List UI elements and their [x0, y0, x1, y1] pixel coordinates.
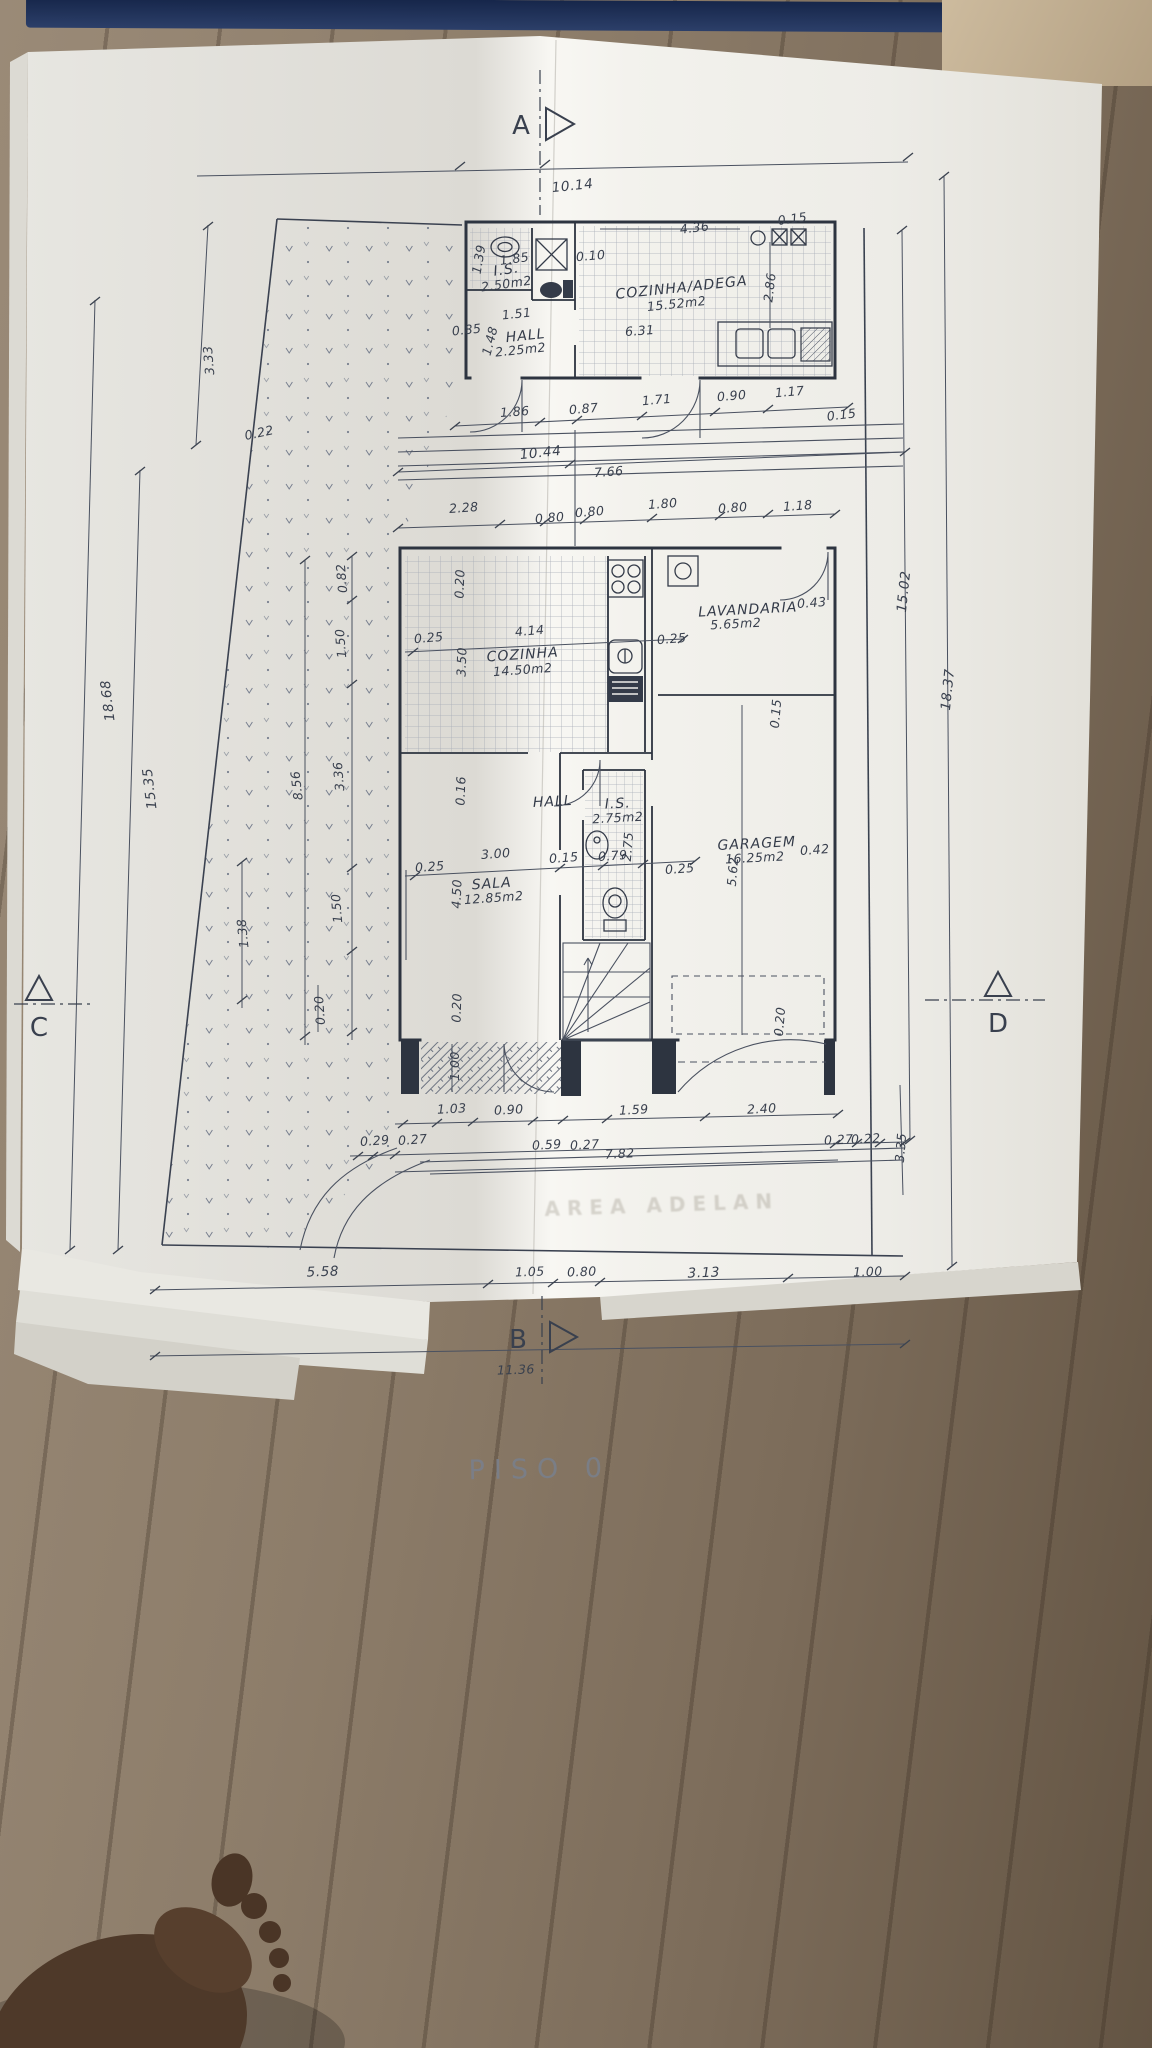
dim-label: 1.00 [447, 1051, 462, 1080]
dim-label: 0.20 [451, 569, 467, 599]
section-marker-a: A [512, 111, 530, 141]
dim-label: 1.38 [234, 918, 252, 949]
dim-label: 1.86 [499, 403, 529, 420]
dim-label: 7.82 [605, 1145, 635, 1162]
dim-label: 0.25 [414, 858, 444, 875]
dim-label: 0.27 [570, 1136, 600, 1153]
dim-label: 0.80 [717, 499, 747, 516]
dim-label: 0.87 [568, 400, 599, 418]
dim-label: 1.50 [328, 893, 346, 924]
section-marker-b: B [509, 1325, 527, 1355]
dim-label: 0.20 [311, 995, 328, 1025]
dim-label: 3.50 [453, 647, 469, 677]
dim-label: 11.36 [497, 1361, 535, 1377]
dim-label: 3.00 [480, 845, 510, 862]
dim-label: 0.27 [397, 1131, 427, 1148]
dim-label: 3.35 [892, 1132, 910, 1163]
photo-of-floor-plan: 10.14 4.36 0.15 0.10 2.86 6.31 1.85 1.39… [0, 0, 1152, 2048]
dim-label: 0.25 [664, 860, 694, 877]
dim-label: 5.58 [306, 1263, 339, 1280]
dim-label: 1.59 [619, 1101, 649, 1118]
dim-label: 0.80 [534, 509, 565, 527]
dim-label: 1.03 [437, 1100, 467, 1117]
dim-label: 0.22 [851, 1130, 881, 1147]
room-name-hall2: HALL [533, 793, 574, 811]
dim-label: 1.17 [774, 383, 805, 401]
dim-label: 0.20 [771, 1006, 789, 1037]
dim-label: 0.82 [333, 563, 351, 594]
section-marker-c: C [30, 1013, 48, 1043]
dim-label: 0.15 [548, 849, 578, 866]
dim-label: 2.75 [619, 831, 637, 862]
dim-label: 3.36 [330, 761, 348, 792]
dim-label: 2.28 [448, 499, 478, 516]
dim-label: 3.33 [200, 345, 218, 376]
dim-label: 0.80 [567, 1263, 597, 1279]
page-title: PISO 0 [468, 1453, 611, 1486]
dim-label: 0.20 [448, 993, 464, 1023]
room-area-garagem: 16.25m2 [725, 848, 785, 866]
dim-label: 0.25 [413, 629, 444, 647]
dim-label: 6.31 [624, 322, 654, 339]
dim-label: 0.10 [575, 247, 606, 265]
dim-label: 0.90 [494, 1101, 524, 1118]
dim-label: 1.80 [647, 495, 677, 512]
dim-label: 0.80 [574, 503, 605, 521]
dim-label: 1.18 [782, 497, 812, 514]
dim-label: 0.15 [767, 698, 785, 729]
dim-label: 0.27 [824, 1131, 854, 1148]
dim-label: 4.50 [448, 879, 464, 909]
dim-label: 0.43 [796, 594, 826, 611]
room-area-lavandaria: 5.65m2 [710, 615, 762, 633]
dim-label: 4.14 [514, 622, 545, 640]
dim-label: 0.59 [532, 1136, 562, 1153]
dim-label: 0.16 [452, 776, 468, 806]
dim-label: 2.40 [747, 1100, 777, 1117]
dim-label: 7.66 [593, 463, 623, 480]
dim-label: 3.13 [687, 1264, 720, 1281]
porch-herringbone [421, 1042, 561, 1094]
dim-label: 1.51 [501, 305, 532, 323]
dim-label: 1.71 [641, 391, 672, 409]
dim-label: 0.90 [716, 387, 747, 405]
dim-label: 0.85 [451, 321, 482, 339]
dim-label: 1.00 [853, 1263, 883, 1279]
room-area-is2: 2.75m2 [592, 809, 644, 827]
dim-label: 1.05 [515, 1263, 545, 1279]
section-marker-d: D [988, 1009, 1008, 1039]
dim-label: 0.25 [656, 630, 687, 648]
dark-sink-icon [608, 676, 643, 702]
foot [0, 1849, 345, 2048]
dim-label: 0.29 [359, 1132, 389, 1149]
dim-label: 0.42 [799, 841, 829, 858]
dim-label: 1.50 [332, 628, 350, 659]
section-triangle-b [550, 1322, 577, 1352]
